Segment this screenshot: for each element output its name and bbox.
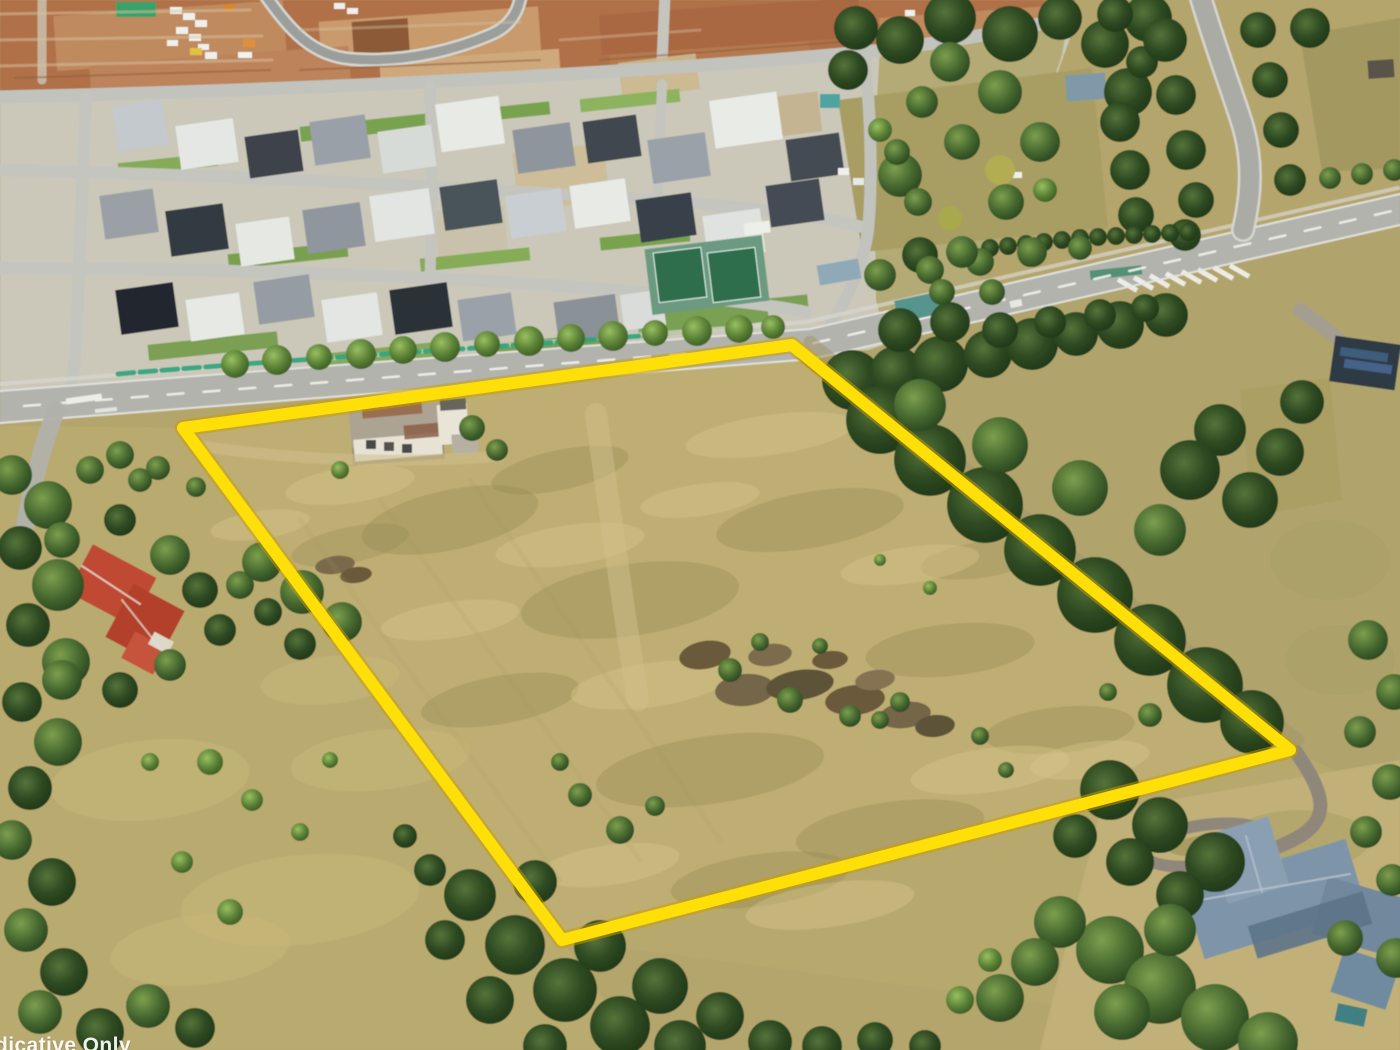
aerial-photo: dicative Only bbox=[0, 0, 1400, 1050]
watermark-text: dicative Only bbox=[0, 1034, 131, 1050]
photo-layers bbox=[0, 0, 1400, 1050]
aerial-photo-canvas bbox=[0, 0, 1400, 1050]
